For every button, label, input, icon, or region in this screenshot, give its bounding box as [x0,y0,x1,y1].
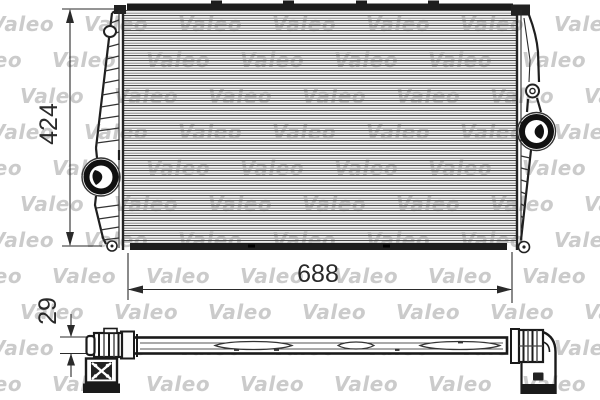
depth-dimension-label: 29 [34,297,62,325]
height-dimension-label: 424 [35,103,63,145]
dimension-height: 424 [35,9,114,246]
left-hose-connector [87,329,135,359]
bracket-bolt-hole [526,85,539,98]
front-view [82,1,556,253]
left-mounting-foot [83,359,120,394]
side-view-core [133,334,507,357]
top-header-bar [127,1,513,11]
tank-hole [104,26,116,37]
right-port [518,113,556,151]
side-view [83,329,556,395]
intercooler-technical-drawing: ValeoValeoValeoValeoValeoValeoValeoValeo… [0,0,600,400]
core-fins [123,9,517,243]
bottom-bar [130,243,507,250]
left-tank [95,5,126,251]
diagram-canvas: 424 688 29 [0,0,600,400]
left-port [82,158,120,196]
width-dimension-label: 688 [297,260,339,288]
dimension-width: 688 [128,252,512,303]
right-mounting-foot [521,373,557,395]
